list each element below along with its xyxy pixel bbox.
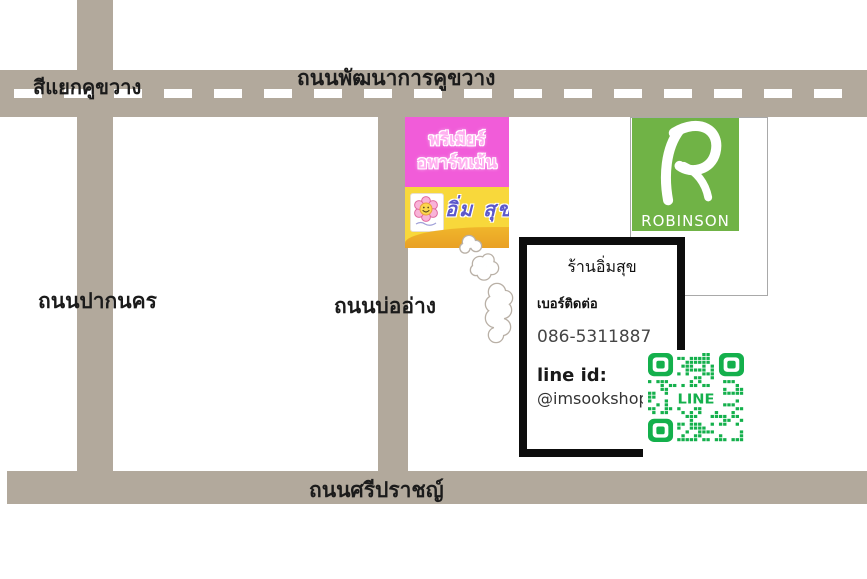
robinson-wordmark: ROBINSON bbox=[632, 212, 739, 230]
cloud-trail-icon bbox=[450, 232, 528, 350]
robinson-r-icon bbox=[646, 120, 726, 206]
qr-pattern: LINE bbox=[648, 353, 744, 442]
premier-apartment-sign: พรีเมียร์ อพาร์ทเม้น bbox=[405, 117, 509, 248]
imsook-brand-text: อิ่ม สุข bbox=[445, 193, 509, 225]
svg-text:LINE: LINE bbox=[678, 392, 715, 407]
road-middle-label: ถนนบ่ออ่าง bbox=[334, 290, 436, 323]
contact-number-label: เบอร์ติดต่อ bbox=[537, 293, 677, 314]
road-bottom-label: ถนนศรีปราชญ์ bbox=[309, 474, 444, 507]
road-left-label: ถนนปากนคร bbox=[38, 285, 157, 318]
road-top-label: ถนนพัฒนาการคูขวาง bbox=[297, 62, 495, 95]
premier-apartment-banner: พรีเมียร์ อพาร์ทเม้น bbox=[405, 117, 509, 187]
flower-logo bbox=[410, 193, 444, 232]
flower-icon bbox=[415, 197, 438, 226]
phone-number: 086-5311887 bbox=[537, 327, 677, 347]
shop-name: ร้านอิ่มสุข bbox=[527, 255, 677, 280]
premier-line1: พรีเมียร์ bbox=[429, 131, 485, 150]
intersection-label: สีแยกคูขวาง bbox=[33, 71, 141, 103]
line-qr-code: LINE bbox=[643, 350, 746, 457]
premier-line2: อพาร์ทเม้น bbox=[417, 154, 497, 173]
robinson-logo: ROBINSON bbox=[632, 118, 739, 231]
map-canvas: สีแยกคูขวาง ถนนพัฒนาการคูขวาง ถนนปากนคร … bbox=[0, 0, 867, 579]
